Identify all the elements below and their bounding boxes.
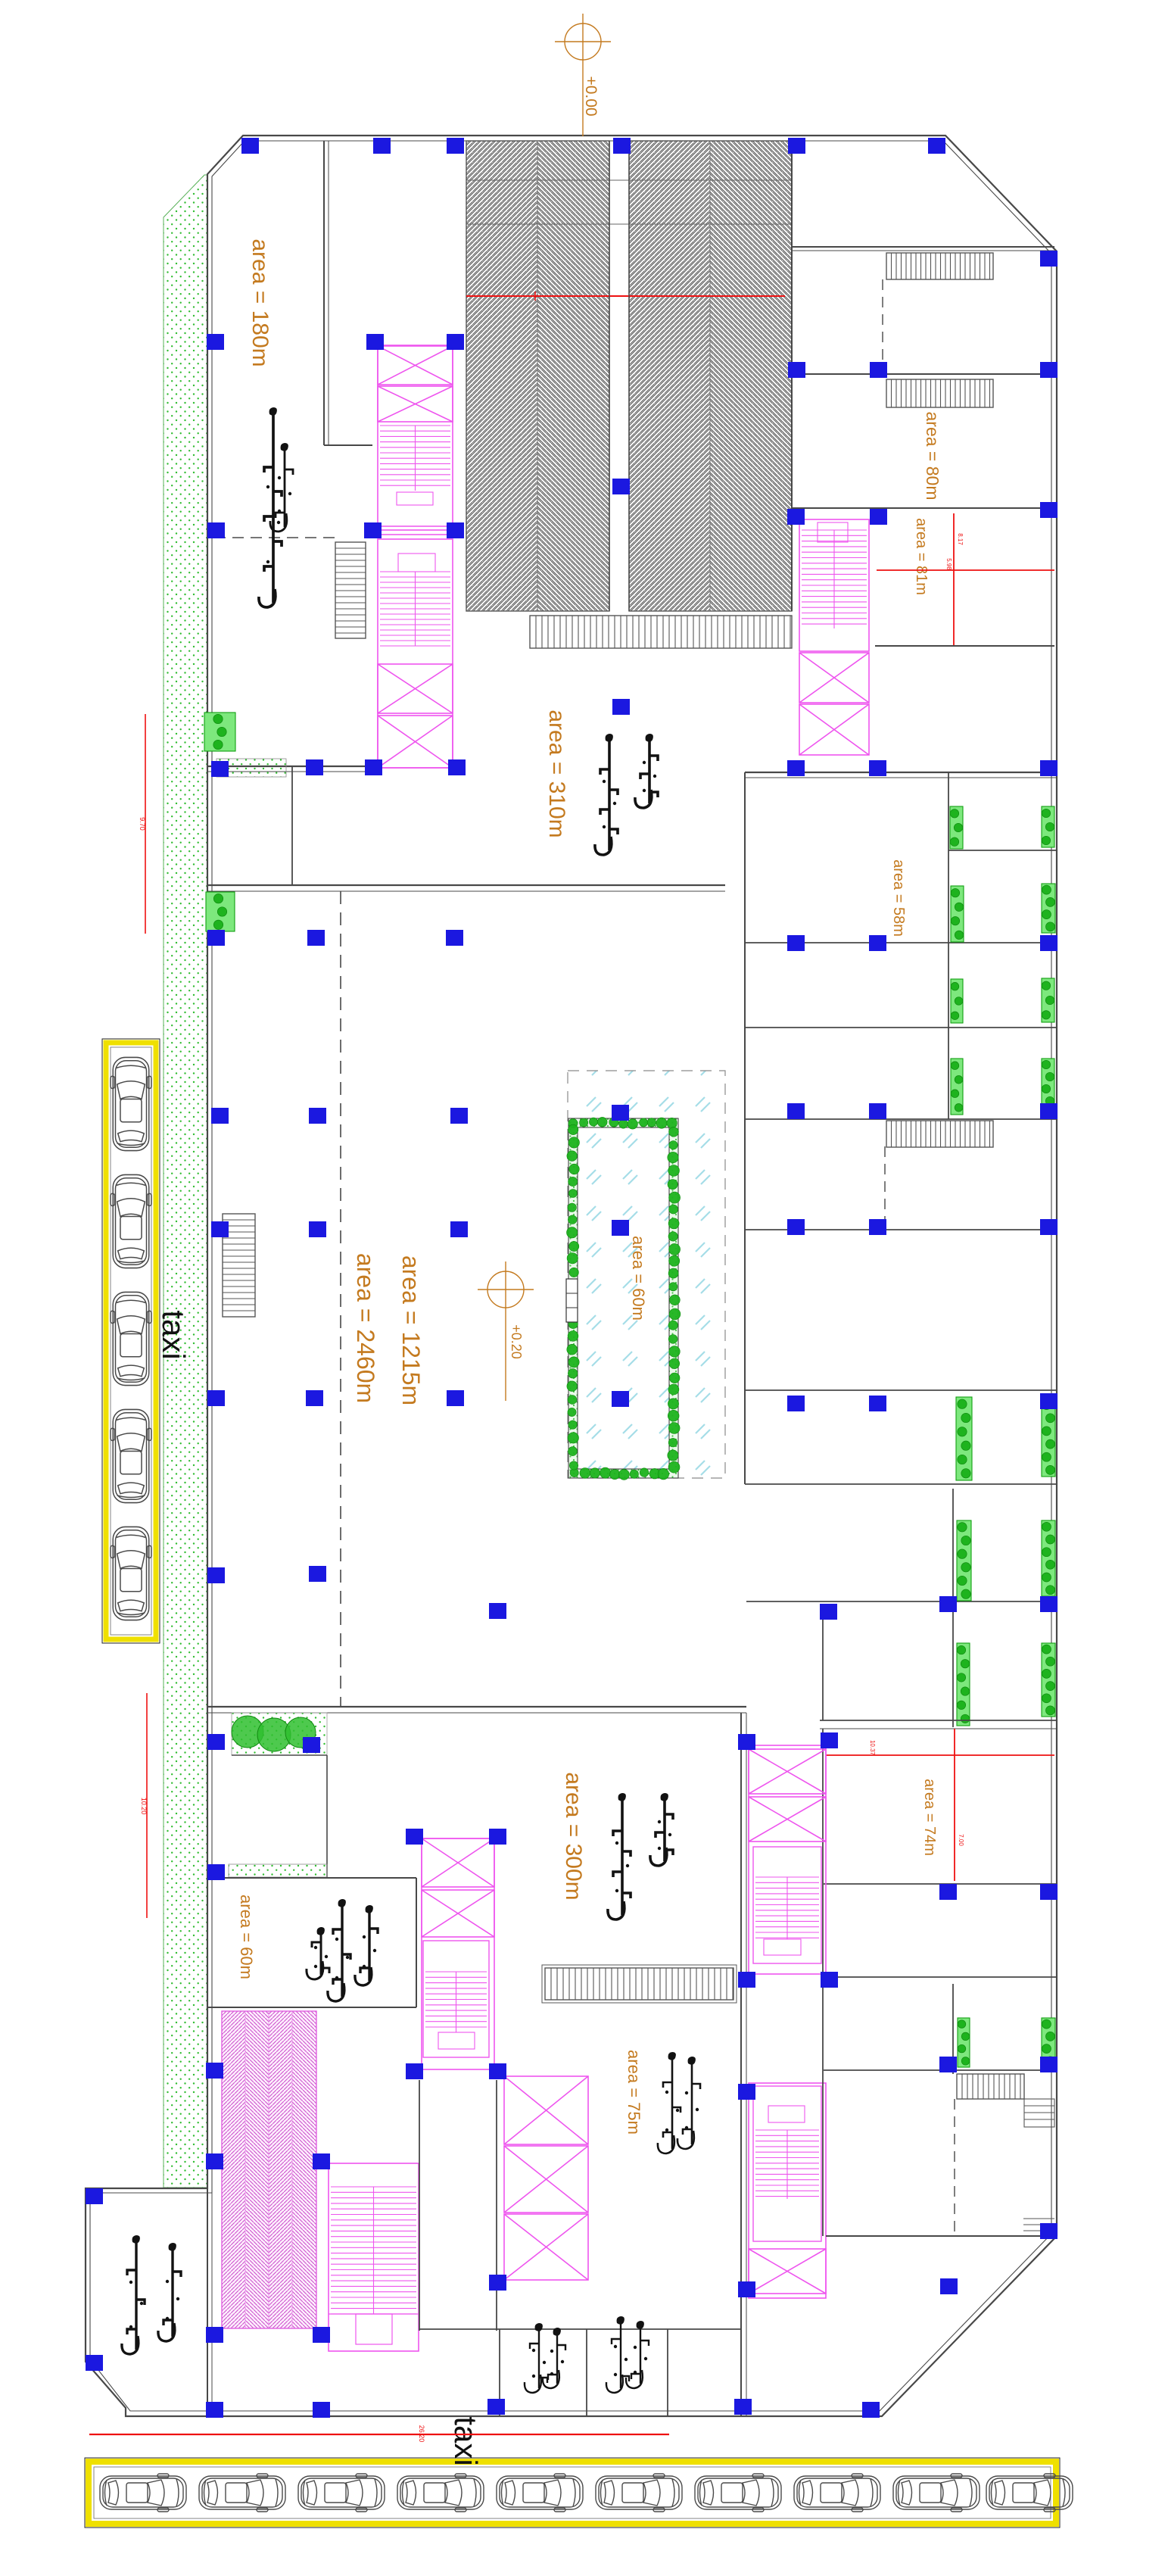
svg-text:area = 310m: area = 310m xyxy=(544,709,569,837)
svg-text:area = 60m: area = 60m xyxy=(629,1236,648,1321)
svg-text:area = 300m: area = 300m xyxy=(561,1772,586,1900)
svg-text:10.37: 10.37 xyxy=(869,1740,876,1756)
svg-text:area = 180m: area = 180m xyxy=(248,239,273,366)
svg-text:+0.00: +0.00 xyxy=(582,76,600,116)
svg-text:area = 1215m: area = 1215m xyxy=(397,1255,425,1405)
svg-text:area = 2460m: area = 2460m xyxy=(352,1253,379,1403)
svg-text:26.20: 26.20 xyxy=(418,2425,425,2443)
svg-text:area = 74m: area = 74m xyxy=(921,1779,938,1856)
svg-text:area = 80m: area = 80m xyxy=(923,412,942,501)
svg-text:8.17: 8.17 xyxy=(957,533,964,545)
svg-text:area = 58m: area = 58m xyxy=(890,859,907,937)
svg-text:7.00: 7.00 xyxy=(958,1834,964,1846)
svg-text:+0.20: +0.20 xyxy=(509,1324,524,1359)
svg-text:10.20: 10.20 xyxy=(140,1798,148,1815)
svg-text:5.98: 5.98 xyxy=(945,558,952,570)
svg-text:taxi: taxi xyxy=(156,1310,192,1359)
svg-text:area = 75m: area = 75m xyxy=(624,2050,643,2135)
svg-text:area = 60m: area = 60m xyxy=(237,1895,256,1979)
svg-text:9.70: 9.70 xyxy=(139,817,146,831)
svg-text:area = 81m: area = 81m xyxy=(913,518,930,595)
svg-text:taxi: taxi xyxy=(448,2416,484,2465)
